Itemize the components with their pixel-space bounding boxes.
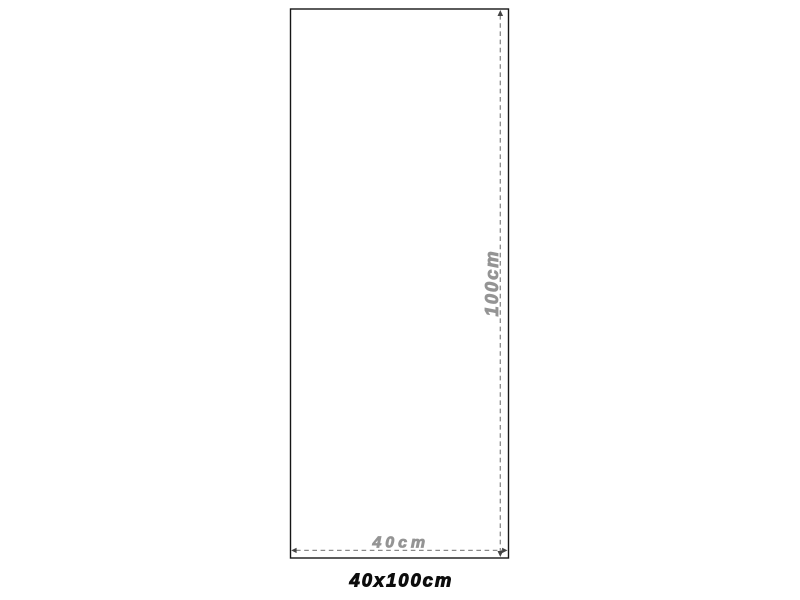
svg-text:40cm: 40cm: [372, 535, 430, 552]
svg-text:40x100cm: 40x100cm: [349, 570, 454, 591]
svg-text:100cm: 100cm: [481, 249, 502, 316]
